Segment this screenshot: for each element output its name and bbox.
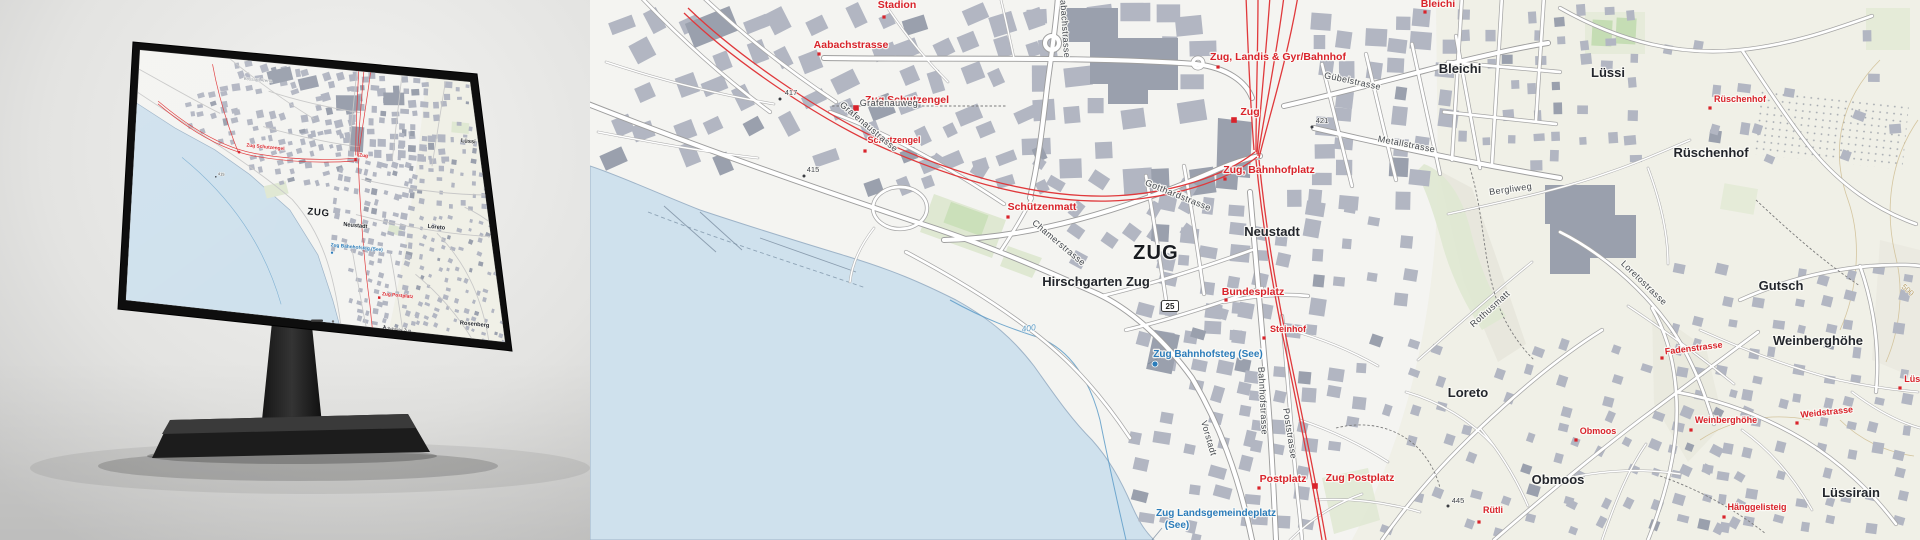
building <box>1063 66 1093 88</box>
building <box>1554 17 1565 27</box>
mini-building <box>436 200 442 206</box>
building <box>1408 169 1430 187</box>
building <box>1276 515 1290 528</box>
building <box>1301 387 1316 402</box>
mini-building <box>408 100 417 108</box>
building <box>1308 189 1322 204</box>
station-marker <box>1312 483 1318 489</box>
building <box>1412 8 1431 27</box>
building <box>1576 4 1586 16</box>
map-label: Zug, Bahnhofplatz <box>1223 164 1315 176</box>
mini-building <box>367 129 375 135</box>
mini-building <box>398 251 402 256</box>
building <box>1628 110 1638 121</box>
map-label-group: Lüssirain <box>1822 485 1880 500</box>
mini-label: ZUG <box>307 206 330 219</box>
elevation-dot <box>1311 126 1314 129</box>
building <box>1237 302 1255 320</box>
building <box>1901 393 1913 405</box>
elevation-dot <box>803 175 806 178</box>
mini-building <box>444 94 450 100</box>
map-label: Obmoos <box>1532 472 1585 487</box>
map-label-group: 400 <box>1021 322 1037 334</box>
station-marker <box>354 158 357 161</box>
stop-marker <box>1423 10 1426 13</box>
building <box>1580 53 1592 65</box>
mini-building <box>401 76 408 83</box>
mini-building <box>379 76 385 81</box>
mini-building <box>472 148 477 154</box>
building <box>1312 173 1332 185</box>
mini-building <box>450 169 454 174</box>
mini-building <box>398 194 402 199</box>
map-label-group: Rüschenhof <box>1673 145 1749 160</box>
building <box>1298 371 1312 384</box>
stop-marker <box>1722 515 1725 518</box>
press-image: swisstopo base map of Zug shown on a des… <box>0 0 1920 540</box>
building <box>1579 137 1587 145</box>
building <box>1868 74 1880 82</box>
building <box>1702 464 1714 474</box>
mini-building <box>382 211 387 218</box>
mini-building <box>344 176 351 183</box>
building <box>1367 272 1378 282</box>
map-label: Bleichi <box>1421 0 1456 10</box>
mini-building <box>372 172 376 177</box>
mini-building <box>428 143 434 150</box>
building <box>1250 439 1263 453</box>
mini-building <box>373 308 379 314</box>
mini-building <box>460 172 464 176</box>
building <box>1527 83 1536 94</box>
mini-building <box>345 210 350 214</box>
map-label: Hirschgarten Zug <box>1042 274 1150 289</box>
building <box>1530 160 1542 171</box>
mini-building <box>372 106 377 113</box>
mini-building <box>433 102 439 109</box>
building <box>1342 238 1352 249</box>
road-shield-number: 25 <box>1166 302 1175 311</box>
mini-landmark <box>383 93 404 106</box>
bezel-logo-mark <box>311 320 323 322</box>
building <box>1903 274 1913 283</box>
mini-building <box>451 159 457 165</box>
building <box>1676 366 1689 377</box>
mini-building <box>408 178 412 184</box>
mini-building <box>428 156 432 160</box>
building <box>1801 522 1810 532</box>
stop-marker <box>1224 298 1227 301</box>
building <box>1403 268 1418 282</box>
building <box>1239 405 1251 417</box>
mini-building <box>423 156 426 162</box>
mini-building <box>481 204 486 209</box>
building <box>1605 7 1615 15</box>
building <box>1314 35 1326 49</box>
map-label-group: Bleichi <box>1439 61 1482 76</box>
building <box>1722 442 1734 454</box>
mini-building <box>354 188 359 194</box>
mini-building <box>411 89 419 96</box>
map-label: Gutsch <box>1759 278 1804 293</box>
elevation-dot <box>779 98 782 101</box>
boat-stop-marker <box>331 251 334 254</box>
mini-building <box>451 137 454 142</box>
stop-marker <box>1223 177 1226 180</box>
building <box>1026 9 1047 24</box>
mini-building <box>377 258 382 263</box>
mini-building <box>398 155 401 160</box>
mini-building <box>463 135 467 138</box>
mini-building <box>468 126 472 131</box>
building <box>1189 484 1201 495</box>
building <box>1387 58 1404 73</box>
building <box>1287 190 1302 207</box>
boat-stop-marker <box>1152 361 1158 367</box>
building <box>1391 106 1408 126</box>
map-label: Grafenauweg <box>860 98 918 108</box>
mini-building <box>456 87 460 91</box>
mini-building <box>413 78 420 83</box>
building <box>1889 124 1901 134</box>
mini-building <box>398 230 405 236</box>
mini-building <box>353 71 358 79</box>
mini-building <box>379 117 385 123</box>
mini-building <box>400 109 409 115</box>
map-label-group: Zug Landsgemeindeplatz <box>1156 508 1276 519</box>
building <box>1228 205 1244 217</box>
building <box>1528 11 1537 23</box>
building <box>1628 77 1637 88</box>
map-label: Lüssi <box>1904 374 1920 384</box>
map-label: 417 <box>785 88 798 97</box>
building <box>1120 3 1150 21</box>
map-label-group: Grafenauweg <box>860 98 918 108</box>
map-label: Obmoos <box>1580 426 1617 436</box>
building <box>1865 523 1877 534</box>
mini-building <box>466 84 470 88</box>
map-label: Zug, Landis & Gyr/Bahnhof <box>1210 51 1346 63</box>
building <box>1608 132 1618 144</box>
mini-building <box>410 124 415 130</box>
building <box>1273 390 1287 404</box>
mini-building <box>393 86 400 94</box>
building <box>1095 142 1113 159</box>
map-label: Bleichi <box>1439 61 1482 76</box>
map-label: (See) <box>1165 520 1189 531</box>
building <box>1752 297 1765 309</box>
monitor-photo: Bossard ArenaZug SchutzengelZugZUGNeusta… <box>0 0 590 540</box>
building <box>1577 105 1588 114</box>
mini-building <box>325 119 332 125</box>
building <box>1120 108 1146 130</box>
building <box>1315 144 1335 159</box>
map-label: Weinberghöhe <box>1773 333 1863 348</box>
mini-building <box>368 238 375 245</box>
stop-marker <box>1689 428 1692 431</box>
building <box>1063 106 1080 124</box>
building <box>1313 274 1325 287</box>
map-label: Zug <box>1240 106 1259 118</box>
map-label-group: Hirschgarten Zug <box>1042 274 1150 289</box>
stop-marker <box>1708 106 1711 109</box>
building <box>1863 30 1872 41</box>
mini-building <box>380 111 386 117</box>
stop-marker <box>1477 520 1480 523</box>
building <box>1333 276 1345 286</box>
map-label: Lüssirain <box>1822 485 1880 500</box>
building <box>1303 218 1322 238</box>
stop-marker <box>1006 215 1009 218</box>
map-label-group: Gutsch <box>1759 278 1804 293</box>
mini-building <box>412 111 417 117</box>
building <box>1557 36 1565 44</box>
mini-building <box>451 183 455 188</box>
mini-building <box>407 233 413 238</box>
mini-building <box>423 112 429 118</box>
building <box>1502 55 1513 64</box>
mini-building <box>419 198 425 205</box>
building <box>1059 158 1082 178</box>
mini-building <box>399 164 404 168</box>
mini-building <box>404 88 409 94</box>
mini-building <box>466 101 469 104</box>
building <box>1312 249 1323 262</box>
map-label: Hänggelisteig <box>1727 502 1786 512</box>
building <box>1244 494 1260 505</box>
building <box>1552 82 1560 91</box>
stop-marker <box>1574 438 1577 441</box>
mini-building <box>368 152 373 157</box>
building <box>1485 30 1495 42</box>
map-label-group: Loreto <box>1448 385 1489 400</box>
mini-building <box>335 152 341 157</box>
building <box>1719 522 1730 533</box>
map-label: Zug Postplatz <box>1326 472 1395 484</box>
building <box>1352 396 1367 410</box>
building <box>1843 319 1853 330</box>
stop-marker <box>863 149 866 152</box>
mini-building <box>422 82 429 87</box>
building <box>1395 192 1410 210</box>
building <box>1178 255 1189 266</box>
building <box>1852 347 1861 359</box>
mini-building <box>398 145 404 149</box>
building <box>1365 28 1387 47</box>
map-main: 25 <box>588 0 1920 540</box>
building <box>1309 297 1327 316</box>
mini-building <box>390 134 398 140</box>
building <box>1553 102 1562 114</box>
power-led <box>332 320 334 322</box>
building <box>1903 425 1911 436</box>
map-label: Zug Bahnhofsteg (See) <box>1153 349 1262 360</box>
map-label: Aabachstrasse <box>814 39 889 51</box>
building <box>1180 74 1203 89</box>
building <box>1626 10 1635 21</box>
mini-building <box>408 242 413 249</box>
building <box>1335 30 1352 49</box>
scene-svg: swisstopo base map of Zug shown on a des… <box>0 0 1920 540</box>
mini-building <box>392 112 400 117</box>
map-label: Rütli <box>1483 505 1503 515</box>
mini-building <box>408 145 416 152</box>
stop-marker <box>1216 65 1219 68</box>
mini-building <box>472 170 476 175</box>
mini-building <box>331 235 337 241</box>
mini-building <box>437 177 443 181</box>
mini-building <box>438 148 446 155</box>
mini-building <box>374 150 381 158</box>
mini-building <box>472 181 476 185</box>
map-label-group: Weinberghöhe <box>1773 333 1863 348</box>
mini-building <box>369 118 374 125</box>
mini-building <box>461 200 466 206</box>
building <box>1400 235 1413 249</box>
building <box>1231 330 1246 345</box>
building <box>1580 40 1589 50</box>
mini-label-group: ZUG <box>307 206 330 219</box>
map-label: 400 <box>1021 322 1037 334</box>
stop-marker <box>1257 486 1260 489</box>
building <box>1605 38 1616 46</box>
mini-building <box>371 188 378 196</box>
monitor-stand-neck <box>262 322 322 424</box>
map-label: Steinhof <box>1270 324 1307 334</box>
map-label: Bundesplatz <box>1222 286 1284 298</box>
map-label: Lüssi <box>1591 65 1625 80</box>
building <box>1177 99 1208 124</box>
map-label: Schützenmatt <box>1008 201 1077 213</box>
station-marker <box>378 296 381 299</box>
mini-building <box>457 122 462 126</box>
mini-building <box>410 131 415 137</box>
mini-building <box>423 88 428 95</box>
building <box>1508 135 1516 143</box>
stop-marker <box>1898 386 1901 389</box>
building <box>1630 54 1638 63</box>
building <box>1825 515 1835 525</box>
building <box>1356 363 1366 373</box>
map-label: Stadion <box>878 0 917 11</box>
mini-building <box>428 168 433 172</box>
elevation-dot <box>1447 505 1450 508</box>
building <box>1175 15 1203 37</box>
building <box>1511 80 1519 89</box>
map-label-group: Lüssi <box>1591 65 1625 80</box>
stop-marker <box>882 15 885 18</box>
map-label-group: (See) <box>1165 520 1189 531</box>
mini-building <box>364 298 368 303</box>
mini-building <box>408 155 416 161</box>
map-label-group: Obmoos <box>1532 472 1585 487</box>
mini-building <box>422 136 428 141</box>
map-label: 421 <box>1316 116 1329 125</box>
building <box>1204 321 1221 335</box>
mini-building <box>326 183 330 187</box>
building <box>1273 366 1286 377</box>
map-label: Rüschenhof <box>1673 145 1749 160</box>
map-label: Weinberghöhe <box>1695 415 1757 425</box>
building <box>1792 393 1801 402</box>
building <box>1387 38 1407 54</box>
mini-building <box>370 139 377 147</box>
map-label-group: ZUG <box>1133 242 1179 264</box>
building <box>1551 132 1560 142</box>
station-marker <box>1231 117 1237 123</box>
building <box>1482 137 1490 145</box>
building <box>1772 320 1785 330</box>
map-label: Postplatz <box>1260 473 1307 485</box>
building <box>1443 40 1457 54</box>
map-label: Rüschenhof <box>1714 94 1767 104</box>
stop-marker <box>1262 336 1265 339</box>
building <box>1819 417 1828 427</box>
building <box>1728 319 1737 328</box>
building <box>1088 98 1104 113</box>
mini-building <box>420 101 428 108</box>
mini-building <box>439 166 444 172</box>
building <box>1550 150 1559 162</box>
road-shield: 25 <box>1162 301 1179 312</box>
building <box>1783 88 1795 98</box>
mini-building <box>457 97 462 100</box>
mini-building <box>422 147 427 152</box>
map-label: 415 <box>807 165 820 174</box>
building <box>1327 367 1344 382</box>
building <box>1346 416 1360 428</box>
building <box>1310 12 1331 30</box>
building <box>1160 412 1174 425</box>
map-label: 445 <box>1452 496 1465 505</box>
map-label: Neustadt <box>1244 224 1300 239</box>
mini-building <box>368 72 375 79</box>
mini-building <box>305 161 313 168</box>
building <box>1741 389 1753 401</box>
building <box>1871 442 1884 455</box>
building <box>1533 133 1544 141</box>
building <box>1624 135 1637 145</box>
building <box>1737 83 1751 93</box>
building <box>1438 89 1452 106</box>
building <box>1395 86 1408 100</box>
building <box>1394 292 1409 306</box>
building <box>1740 122 1751 135</box>
mini-building <box>378 139 386 147</box>
stop-marker <box>817 52 820 55</box>
building <box>1328 441 1341 451</box>
mini-building <box>449 204 453 209</box>
mini-building <box>371 208 377 215</box>
building <box>1396 16 1411 30</box>
mini-building <box>442 160 445 164</box>
building <box>1847 449 1857 460</box>
mini-building <box>462 149 466 154</box>
building <box>1893 322 1906 334</box>
building <box>1745 488 1758 500</box>
map-label-group: Neustadt <box>1244 224 1300 239</box>
mini-building <box>419 165 423 169</box>
mini-building <box>409 165 414 171</box>
mini-building <box>385 283 389 288</box>
mini-label: Zug <box>359 153 368 160</box>
map-label: Zug Landsgemeindeplatz <box>1156 508 1276 519</box>
map-label: ZUG <box>1133 242 1179 264</box>
mini-building <box>419 178 424 183</box>
building <box>1327 385 1342 398</box>
stop-marker <box>1660 356 1663 359</box>
mini-building <box>399 123 405 130</box>
